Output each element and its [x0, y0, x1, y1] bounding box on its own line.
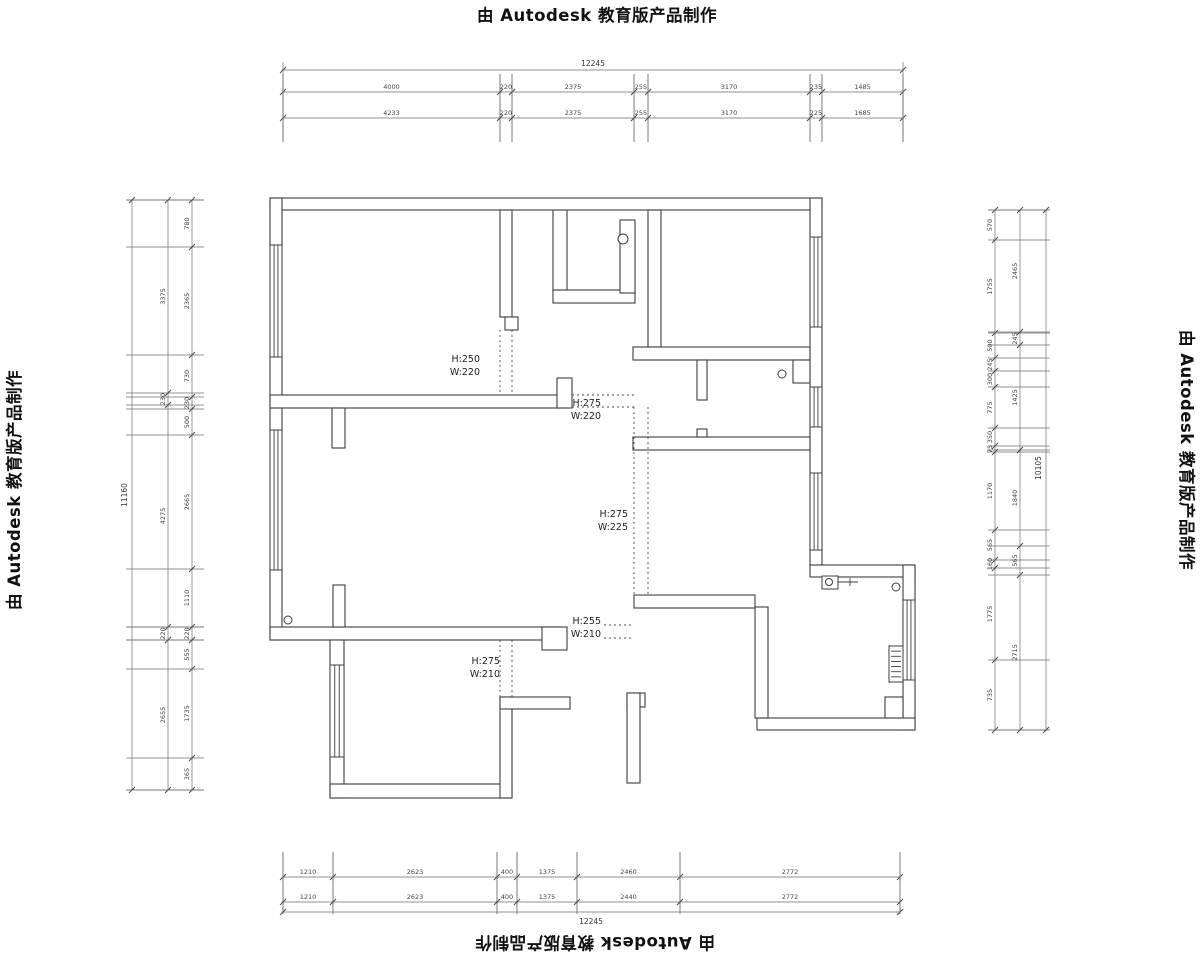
svg-text:2623: 2623: [407, 868, 424, 876]
svg-text:H:275: H:275: [600, 509, 628, 520]
floor-plan-drawing: H:250W:220H:275W:220H:275W:225H:255W:210…: [0, 0, 1200, 960]
svg-text:1735: 1735: [183, 705, 191, 722]
svg-text:2772: 2772: [782, 868, 799, 876]
svg-text:1375: 1375: [539, 893, 556, 901]
svg-text:400: 400: [501, 868, 513, 876]
svg-text:H:275: H:275: [573, 398, 601, 409]
svg-text:160: 160: [986, 558, 994, 570]
dimensions-layer: 4000220237525531702351485423322023752553…: [120, 59, 1050, 926]
svg-text:4000: 4000: [383, 83, 400, 91]
svg-text:775: 775: [986, 401, 994, 413]
svg-text:3170: 3170: [721, 83, 738, 91]
svg-text:245: 245: [1011, 332, 1019, 344]
svg-text:735: 735: [986, 689, 994, 701]
cad-drawing-page: 由 Autodesk 教育版产品制作 由 Autodesk 教育版产品制作 由 …: [0, 0, 1200, 960]
svg-text:2655: 2655: [159, 707, 167, 724]
svg-text:500: 500: [183, 416, 191, 428]
svg-text:230: 230: [183, 397, 191, 409]
svg-text:220: 220: [500, 83, 512, 91]
svg-text:225: 225: [810, 109, 822, 117]
windows-layer: [270, 237, 915, 757]
svg-text:1685: 1685: [854, 109, 871, 117]
svg-text:4233: 4233: [383, 109, 400, 117]
svg-text:350: 350: [986, 431, 994, 443]
svg-text:1210: 1210: [300, 868, 317, 876]
svg-text:565: 565: [986, 539, 994, 551]
svg-text:565: 565: [1011, 554, 1019, 566]
svg-text:W:210: W:210: [571, 629, 601, 640]
svg-text:1110: 1110: [183, 590, 191, 607]
svg-text:2465: 2465: [1011, 263, 1019, 280]
svg-text:12245: 12245: [579, 917, 603, 926]
svg-text:230: 230: [159, 393, 167, 405]
svg-text:75: 75: [986, 445, 994, 453]
svg-text:780: 780: [183, 217, 191, 229]
svg-text:H:255: H:255: [573, 616, 601, 627]
svg-text:220: 220: [159, 627, 167, 639]
svg-text:12245: 12245: [581, 59, 605, 68]
svg-text:2772: 2772: [782, 893, 799, 901]
svg-text:2375: 2375: [565, 83, 582, 91]
svg-text:220: 220: [500, 109, 512, 117]
svg-text:3375: 3375: [159, 288, 167, 305]
svg-text:2375: 2375: [565, 109, 582, 117]
svg-text:730: 730: [183, 370, 191, 382]
svg-text:W:225: W:225: [598, 522, 628, 533]
svg-text:W:220: W:220: [571, 411, 601, 422]
svg-text:2460: 2460: [620, 868, 637, 876]
svg-text:2365: 2365: [183, 293, 191, 310]
svg-text:2665: 2665: [183, 494, 191, 511]
svg-text:1755: 1755: [986, 278, 994, 295]
svg-text:W:220: W:220: [450, 367, 480, 378]
svg-text:1425: 1425: [1011, 389, 1019, 406]
svg-text:255: 255: [635, 109, 647, 117]
svg-text:245: 245: [986, 358, 994, 370]
svg-text:235: 235: [810, 83, 822, 91]
svg-text:365: 365: [183, 768, 191, 780]
svg-text:400: 400: [501, 893, 513, 901]
svg-text:300: 300: [986, 373, 994, 385]
svg-text:570: 570: [986, 219, 994, 231]
svg-text:1840: 1840: [1011, 490, 1019, 507]
svg-text:H:275: H:275: [472, 656, 500, 667]
svg-text:11160: 11160: [120, 483, 129, 507]
svg-text:3170: 3170: [721, 109, 738, 117]
svg-text:W:210: W:210: [470, 669, 500, 680]
svg-text:2623: 2623: [407, 893, 424, 901]
svg-text:1170: 1170: [986, 483, 994, 500]
svg-text:500: 500: [986, 339, 994, 351]
svg-text:1375: 1375: [539, 868, 556, 876]
svg-text:H:250: H:250: [452, 354, 480, 365]
svg-text:1775: 1775: [986, 606, 994, 623]
svg-text:555: 555: [183, 648, 191, 660]
svg-text:1485: 1485: [854, 83, 871, 91]
svg-text:2440: 2440: [620, 893, 637, 901]
svg-text:1210: 1210: [300, 893, 317, 901]
svg-text:2715: 2715: [1011, 644, 1019, 661]
svg-text:220: 220: [183, 627, 191, 639]
svg-text:4275: 4275: [159, 508, 167, 525]
svg-text:10105: 10105: [1034, 456, 1043, 480]
svg-text:255: 255: [635, 83, 647, 91]
